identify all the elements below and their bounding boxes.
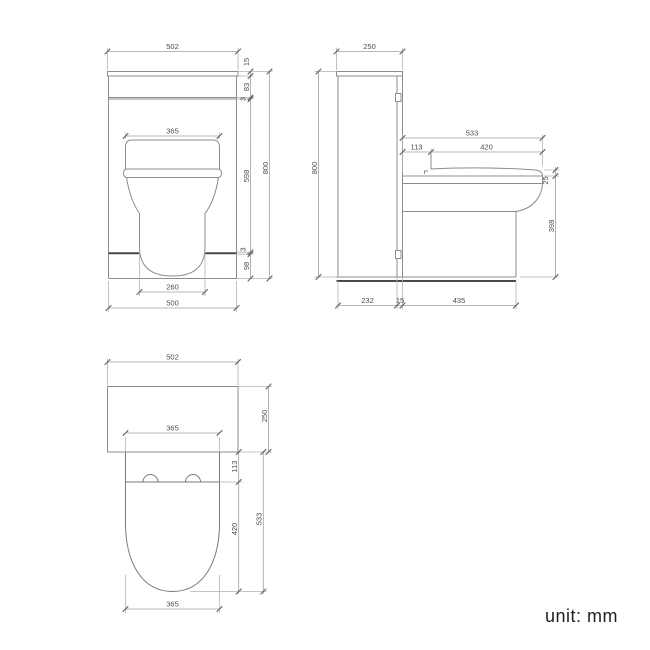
- plan-view: 502 250 365 113 420 533 365: [105, 353, 272, 614]
- dim-plan-total-projection: 533: [255, 513, 264, 526]
- side-panel-hinge-blocks: [396, 94, 402, 259]
- side-toilet-outline: [403, 154, 543, 278]
- dim-front-cabinet-body-width: 500: [166, 299, 179, 308]
- side-dimension-labels: 250 800 533 113 420 25 398 232 15 435: [310, 42, 556, 305]
- dim-side-cabinet-depth: 250: [363, 42, 376, 51]
- dim-front-overall-height: 800: [261, 162, 270, 175]
- dim-side-pan-height: 398: [547, 220, 556, 233]
- dim-plan-pan-width: 365: [166, 600, 179, 609]
- technical-drawing-page: 502 365 260 500 15 83 3 598 3 98 800 250…: [0, 0, 650, 650]
- dim-plan-cabinet-width: 502: [166, 353, 179, 362]
- side-dimension-lines: [319, 52, 556, 306]
- dim-front-seat-width: 365: [166, 127, 179, 136]
- plan-dimension-labels: 502 250 365 113 420 533 365: [166, 353, 269, 609]
- plan-extension-lines: [108, 359, 273, 614]
- dim-plan-hinge-offset: 113: [230, 461, 239, 473]
- plan-dimension-lines: [108, 362, 269, 609]
- plan-cabinet-outline: [108, 387, 239, 453]
- dim-front-gap-bottom: 3: [239, 247, 248, 251]
- dim-side-seat-hinge-offset: 113: [411, 143, 423, 152]
- front-toilet-outline: [124, 140, 222, 276]
- dim-side-seat-total-projection: 533: [466, 129, 479, 138]
- dim-plan-cabinet-depth: 250: [260, 410, 269, 423]
- dim-front-worktop-thickness: 15: [242, 58, 251, 66]
- plan-dimension-ticks: [105, 359, 272, 612]
- dim-side-seat-length: 420: [480, 143, 493, 152]
- dim-side-seat-rim-thickness: 25: [541, 176, 550, 184]
- unit-label: unit: mm: [545, 606, 618, 627]
- dim-front-plinth-height: 98: [242, 262, 251, 270]
- dim-front-door-height: 598: [242, 170, 251, 183]
- dim-front-gap-top: 3: [239, 97, 248, 101]
- side-view: 250 800 533 113 420 25 398 232 15 435: [310, 42, 559, 310]
- plan-toilet-seat-outline: [126, 452, 220, 592]
- dim-plan-seat-length: 420: [230, 523, 239, 536]
- dim-side-pan-projection: 435: [453, 296, 466, 305]
- side-dimension-ticks: [316, 49, 559, 309]
- dim-side-cabinet-body-depth: 232: [361, 296, 374, 305]
- dim-front-pan-base-width: 260: [166, 283, 179, 292]
- dim-side-panel-thickness: 15: [396, 296, 404, 305]
- front-cabinet-outline: [108, 72, 239, 279]
- front-dimension-labels: 502 365 260 500 15 83 3 598 3 98 800: [166, 42, 270, 308]
- toilet-unit-technical-drawing: 502 365 260 500 15 83 3 598 3 98 800 250…: [0, 0, 650, 650]
- side-cabinet-outline: [337, 72, 517, 278]
- dim-front-top-panel-height: 83: [242, 83, 251, 91]
- dim-plan-seat-width: 365: [166, 424, 179, 433]
- dim-side-overall-height: 800: [310, 162, 319, 175]
- dim-front-cabinet-width: 502: [166, 42, 179, 51]
- front-view: 502 365 260 500 15 83 3 598 3 98 800: [105, 42, 273, 312]
- side-extension-lines: [315, 48, 560, 310]
